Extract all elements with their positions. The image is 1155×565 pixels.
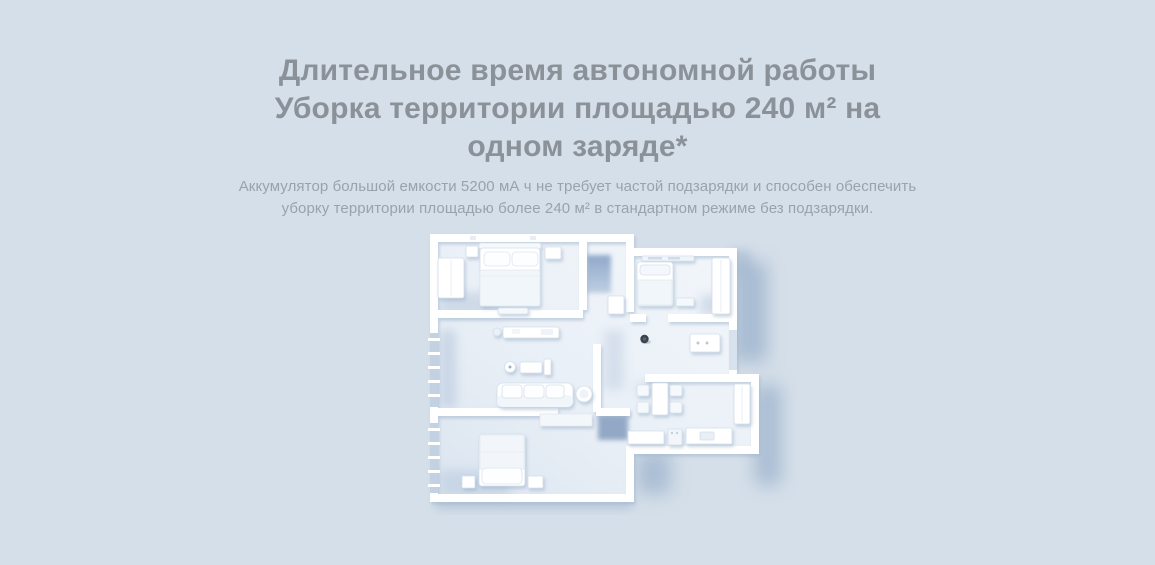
side-unit <box>676 298 694 306</box>
section-description: Аккумулятор большой емкости 5200 мА ч не… <box>218 176 938 219</box>
air-purifier <box>544 359 551 375</box>
pillow <box>482 468 522 484</box>
description-line: уборку территории площадью более 240 м² … <box>218 198 938 220</box>
nightstand <box>545 247 561 259</box>
pillow <box>512 252 538 266</box>
sofa-cushion <box>524 385 544 398</box>
chair <box>637 402 649 413</box>
nightstand <box>462 476 475 488</box>
copy-block: Длительное время автономной работы Уборк… <box>0 0 1155 219</box>
nightstand <box>466 246 478 257</box>
sofa-cushion <box>502 385 522 398</box>
pillow <box>640 265 670 275</box>
description-line: Аккумулятор большой емкости 5200 мА ч не… <box>218 176 938 198</box>
pillow <box>484 252 510 266</box>
sofa-cushion <box>546 385 564 398</box>
dining-table <box>652 383 668 415</box>
heading-line: одном заряде* <box>0 128 1155 166</box>
duvet <box>638 280 672 305</box>
built-in-closet <box>540 414 592 426</box>
section-heading: Длительное время автономной работы Уборк… <box>0 0 1155 166</box>
coffee-tray <box>520 362 542 373</box>
nightstand <box>528 476 543 488</box>
hall-cabinet <box>608 296 624 314</box>
sink <box>700 432 714 440</box>
kitchen-counter <box>628 431 664 444</box>
duvet <box>480 270 540 306</box>
chair <box>670 385 682 396</box>
plant <box>493 328 501 336</box>
chair <box>637 385 649 396</box>
heading-line: Уборка территории площадью 240 м² на <box>0 90 1155 128</box>
hero-section: Длительное время автономной работы Уборк… <box>0 0 1155 565</box>
stove <box>668 429 682 445</box>
console-unit <box>690 334 720 352</box>
heading-line: Длительное время автономной работы <box>0 52 1155 90</box>
chair <box>670 402 682 413</box>
bed-bench <box>498 308 528 314</box>
